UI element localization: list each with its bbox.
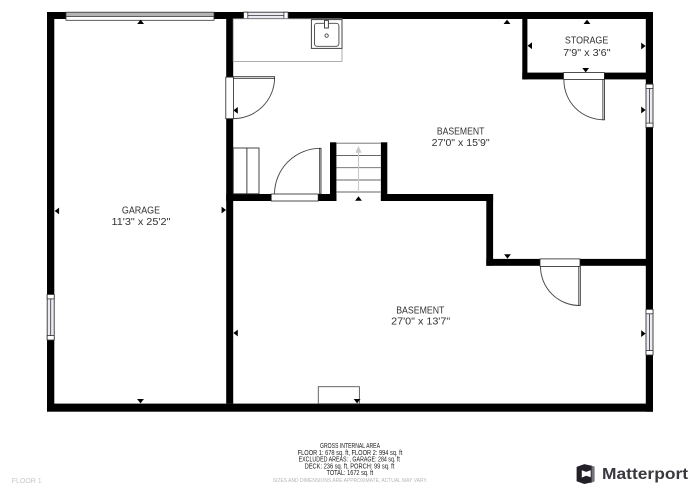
svg-text:BASEMENT: BASEMENT (437, 126, 485, 137)
svg-text:27'0" x 15'9": 27'0" x 15'9" (432, 138, 490, 149)
svg-text:27'0" x 13'7": 27'0" x 13'7" (391, 316, 451, 327)
svg-text:GROSS INTERNAL AREA: GROSS INTERNAL AREA (320, 443, 380, 450)
svg-text:7'9" x 3'6": 7'9" x 3'6" (563, 48, 611, 59)
svg-text:11'3" x 25'2": 11'3" x 25'2" (112, 217, 171, 228)
svg-text:GARAGE: GARAGE (122, 205, 161, 216)
svg-text:TOTAL: 1672 sq. ft: TOTAL: 1672 sq. ft (327, 470, 374, 477)
svg-text:SIZES AND DIMENSIONS ARE APPRO: SIZES AND DIMENSIONS ARE APPROXIMATE, AC… (273, 478, 428, 484)
svg-text:STORAGE: STORAGE (565, 36, 609, 47)
svg-text:FLOOR 1: FLOOR 1 (12, 476, 42, 485)
svg-text:Matterport: Matterport (602, 466, 689, 483)
svg-text:BASEMENT: BASEMENT (396, 306, 444, 317)
